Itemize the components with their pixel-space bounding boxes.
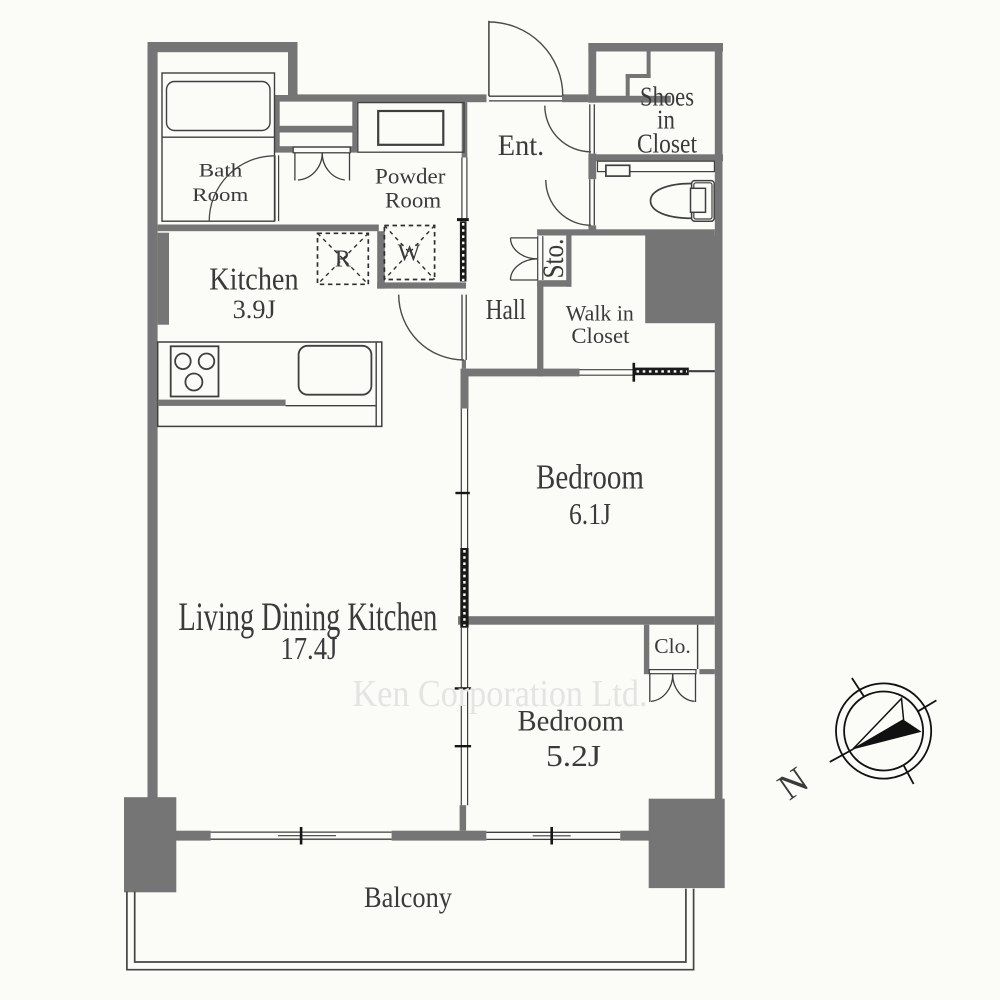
- svg-text:Closet: Closet: [637, 129, 697, 159]
- svg-text:Kitchen: Kitchen: [209, 260, 298, 296]
- svg-text:W: W: [398, 240, 421, 266]
- svg-text:Bath: Bath: [199, 161, 243, 182]
- svg-text:R: R: [335, 247, 351, 273]
- svg-text:Closet: Closet: [571, 323, 630, 348]
- svg-text:Room: Room: [385, 188, 441, 213]
- svg-text:Walk in: Walk in: [566, 300, 634, 325]
- svg-text:Ken Corporation Ltd.: Ken Corporation Ltd.: [353, 673, 648, 715]
- svg-text:Sto.: Sto.: [537, 239, 570, 279]
- svg-text:17.4J: 17.4J: [280, 630, 337, 666]
- svg-text:3.9J: 3.9J: [233, 295, 276, 324]
- svg-text:Powder: Powder: [375, 163, 446, 188]
- svg-text:5.2J: 5.2J: [546, 738, 601, 773]
- svg-text:Ent.: Ent.: [498, 129, 544, 162]
- svg-text:Room: Room: [192, 185, 248, 206]
- svg-text:Bedroom: Bedroom: [536, 458, 644, 496]
- svg-text:Clo.: Clo.: [654, 634, 691, 658]
- svg-text:Balcony: Balcony: [364, 882, 452, 914]
- svg-text:6.1J: 6.1J: [569, 496, 611, 531]
- svg-text:Hall: Hall: [486, 295, 526, 326]
